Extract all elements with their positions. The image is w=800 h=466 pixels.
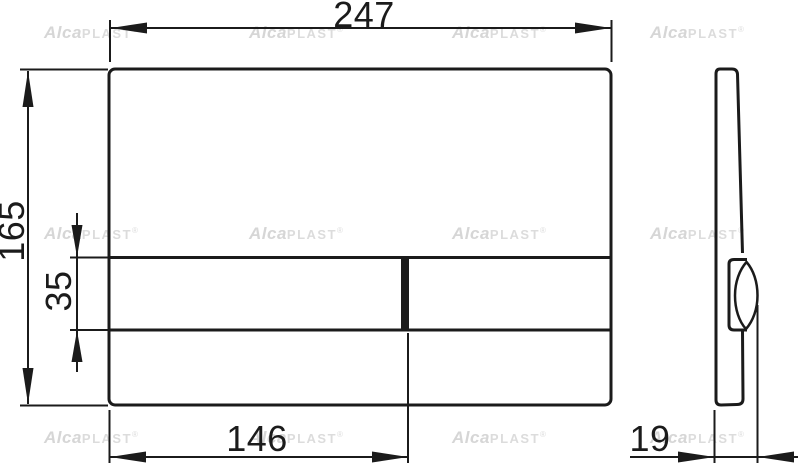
arrowhead-bottom [23, 368, 34, 404]
plate-depth-label: 19 [590, 421, 710, 457]
plate-height-label: 165 [0, 171, 30, 291]
arrowhead-left [110, 452, 146, 463]
front-view [109, 69, 611, 405]
button-divider [401, 256, 409, 332]
drawing-canvas: AlcaPLAST® AlcaPLAST® AlcaPLAST® AlcaPLA… [0, 0, 800, 466]
plate-width-label: 247 [304, 0, 424, 33]
arrowhead-right [575, 23, 611, 34]
button-height-label: 35 [41, 231, 77, 351]
button-width-label: 146 [197, 421, 317, 457]
arrowhead-left [111, 23, 147, 34]
arrowhead-pointing-left [758, 452, 795, 463]
arrowhead-top [23, 71, 34, 107]
side-button-lens [735, 262, 758, 329]
plate-outline [109, 69, 611, 405]
side-view [716, 69, 758, 405]
arrowhead-right [372, 452, 408, 463]
technical-drawing [0, 0, 800, 466]
side-profile-outline [716, 69, 743, 405]
